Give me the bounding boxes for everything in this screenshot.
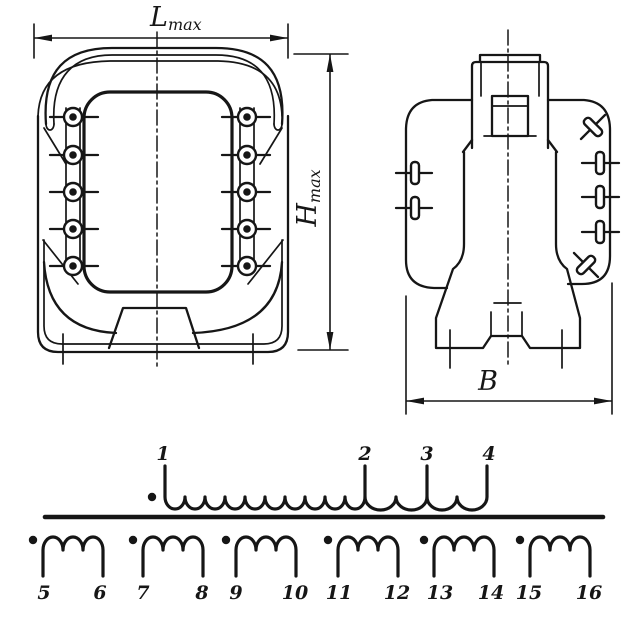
terminal-label: 6: [93, 582, 106, 604]
terminal-label: 13: [427, 582, 453, 604]
terminal-strip-left: [50, 108, 98, 275]
secondary-winding: 11 12: [324, 536, 410, 604]
front-cover-outline: [38, 48, 288, 364]
dimension-length: Lmax: [34, 2, 288, 58]
terminal-label: 1: [156, 443, 169, 465]
polarity-dot: [222, 536, 230, 544]
secondary-winding: 13 14: [420, 536, 504, 604]
dimension-height-label: Hmax: [292, 169, 324, 227]
terminal-label: 16: [576, 582, 602, 604]
side-view: B: [396, 30, 619, 414]
side-top-bracket: [463, 55, 557, 152]
primary-winding: 1 2 3 4: [148, 443, 496, 510]
transformer-drawing: Lmax: [0, 0, 640, 632]
terminal-label: 4: [482, 443, 495, 465]
terminal-label: 14: [478, 582, 504, 604]
terminal-label: 11: [326, 582, 352, 604]
side-pins-right: [574, 115, 619, 277]
polarity-dot: [324, 536, 332, 544]
secondary-winding: 9 10: [222, 536, 308, 604]
bottom-ticks: [63, 334, 253, 364]
polarity-dot: [420, 536, 428, 544]
secondary-windings: 5 6 7 8 9 10 11 12: [29, 536, 602, 604]
arrowhead-right-icon: [270, 35, 288, 42]
terminal-label: 3: [420, 443, 433, 465]
arrowhead-down-icon: [327, 332, 334, 350]
dimension-length-label: Lmax: [149, 2, 202, 34]
terminal-label: 9: [229, 582, 242, 604]
terminal-label: 5: [37, 582, 50, 604]
side-pins-left: [396, 162, 432, 219]
terminal-label: 2: [357, 443, 371, 465]
angled-pin-top: [581, 115, 605, 139]
arrowhead-left-icon: [34, 35, 52, 42]
polarity-dot: [129, 536, 137, 544]
polarity-dot: [29, 536, 37, 544]
secondary-winding: 7 8: [129, 536, 209, 604]
coil-window: [84, 92, 232, 292]
drawing-page: Lmax: [0, 0, 640, 632]
terminal-label: 12: [384, 582, 410, 604]
angled-pin-bottom: [574, 253, 598, 277]
terminal-label: 8: [194, 582, 208, 604]
arrowhead-left-icon: [406, 398, 424, 405]
dimension-height: Hmax: [292, 54, 348, 350]
bracket-window: [492, 96, 528, 136]
winding-schematic: 1 2 3 4 5 6 7 8 9: [29, 443, 603, 604]
terminal-strip-right: [222, 108, 270, 275]
terminal-label: 10: [282, 582, 308, 604]
secondary-winding: 5 6: [29, 536, 107, 604]
mounting-tab: [109, 308, 199, 348]
terminal-label: 15: [516, 582, 542, 604]
arrowhead-up-icon: [327, 54, 334, 72]
terminal-label: 7: [136, 582, 149, 604]
polarity-dot: [516, 536, 524, 544]
arrowhead-right-icon: [594, 398, 612, 405]
front-view: Lmax: [34, 2, 348, 368]
dimension-width-label: B: [477, 366, 498, 397]
polarity-dot: [148, 493, 156, 501]
secondary-winding: 15 16: [516, 536, 602, 604]
